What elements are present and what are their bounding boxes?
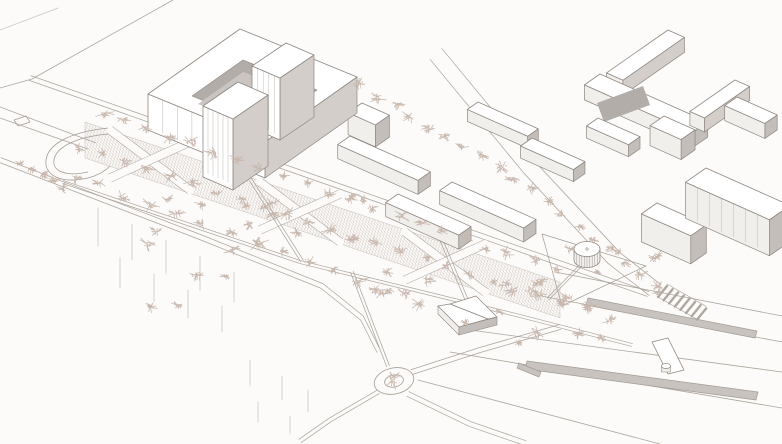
axonometric-site-plan	[0, 0, 782, 444]
pavilion	[574, 242, 600, 268]
site-plan-canvas	[0, 0, 782, 444]
